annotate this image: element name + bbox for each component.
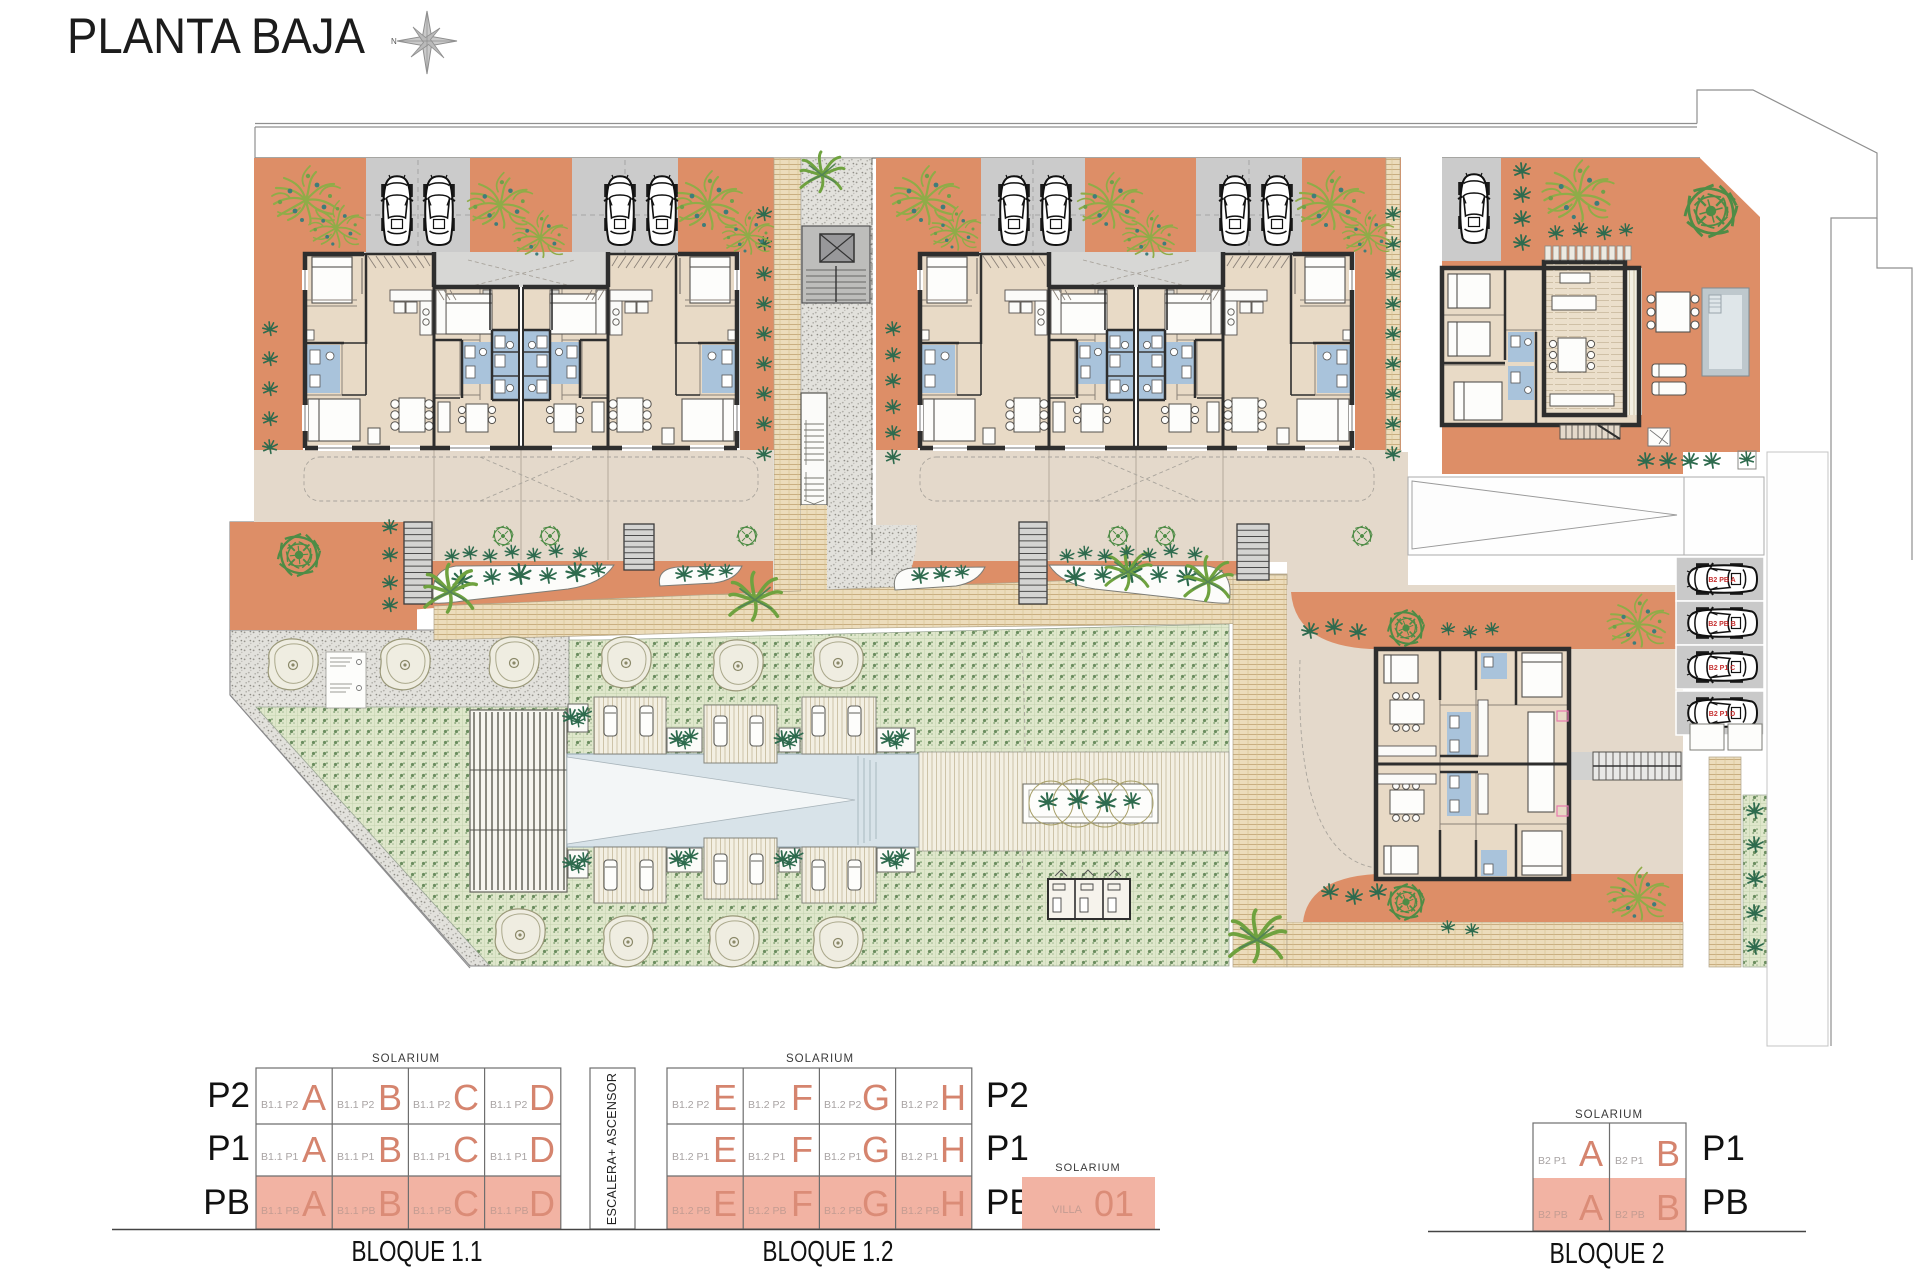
svg-text:B1.1 PB: B1.1 PB: [490, 1205, 529, 1217]
svg-text:B1.2 P2: B1.2 P2: [824, 1099, 862, 1111]
svg-text:E: E: [713, 1129, 737, 1170]
svg-text:B1.1 P1: B1.1 P1: [337, 1151, 375, 1163]
svg-text:B2 P1: B2 P1: [1538, 1155, 1567, 1167]
svg-text:E: E: [713, 1183, 737, 1224]
svg-text:B1.2 P2: B1.2 P2: [672, 1099, 710, 1111]
svg-text:E: E: [713, 1077, 737, 1118]
svg-text:F: F: [791, 1183, 813, 1224]
svg-text:B1.2 PB: B1.2 PB: [672, 1205, 711, 1217]
svg-text:B: B: [378, 1183, 402, 1224]
svg-text:B1.2 P2: B1.2 P2: [748, 1099, 786, 1111]
svg-text:B1.1 P2: B1.1 P2: [413, 1099, 451, 1111]
svg-text:N: N: [391, 37, 397, 46]
svg-text:BLOQUE 2: BLOQUE 2: [1550, 1238, 1665, 1270]
svg-text:B: B: [1656, 1187, 1680, 1228]
svg-text:B1.2 P1: B1.2 P1: [672, 1151, 710, 1163]
svg-text:SOLARIUM: SOLARIUM: [372, 1053, 440, 1065]
svg-text:B2 P1 C: B2 P1 C: [1709, 665, 1735, 672]
svg-text:VILLA: VILLA: [1052, 1204, 1083, 1216]
svg-text:B1.2 P1: B1.2 P1: [824, 1151, 862, 1163]
svg-text:A: A: [1579, 1133, 1603, 1174]
svg-text:D: D: [529, 1129, 555, 1170]
svg-text:B1.1 P2: B1.1 P2: [490, 1099, 528, 1111]
svg-text:P1: P1: [986, 1129, 1029, 1168]
svg-text:B1.2 P1: B1.2 P1: [901, 1151, 939, 1163]
svg-text:D: D: [529, 1077, 555, 1118]
svg-text:H: H: [940, 1129, 966, 1170]
svg-text:H: H: [940, 1077, 966, 1118]
svg-text:PLANTA BAJA: PLANTA BAJA: [67, 8, 366, 64]
svg-text:BLOQUE 1.2: BLOQUE 1.2: [763, 1236, 894, 1268]
svg-text:B1.2 P2: B1.2 P2: [901, 1099, 939, 1111]
svg-text:SOLARIUM: SOLARIUM: [1575, 1109, 1643, 1121]
svg-text:P1: P1: [207, 1129, 250, 1168]
svg-text:B1.2 PB: B1.2 PB: [824, 1205, 863, 1217]
svg-text:PB: PB: [203, 1183, 250, 1222]
svg-text:C: C: [453, 1183, 479, 1224]
svg-text:P2: P2: [986, 1076, 1029, 1115]
svg-text:B1.1 P1: B1.1 P1: [490, 1151, 528, 1163]
svg-text:H: H: [940, 1183, 966, 1224]
svg-text:F: F: [791, 1129, 813, 1170]
svg-text:B1.1 P2: B1.1 P2: [337, 1099, 375, 1111]
svg-text:B2 PB A: B2 PB A: [1708, 577, 1735, 584]
svg-text:B1.2 P1: B1.2 P1: [748, 1151, 786, 1163]
svg-text:B: B: [378, 1077, 402, 1118]
svg-text:B1.1 P1: B1.1 P1: [261, 1151, 299, 1163]
svg-text:B1.1 P1: B1.1 P1: [413, 1151, 451, 1163]
svg-text:B2 PB B: B2 PB B: [1708, 621, 1736, 628]
svg-text:G: G: [862, 1129, 890, 1170]
svg-text:A: A: [1579, 1187, 1603, 1228]
svg-text:B2 PB: B2 PB: [1538, 1209, 1568, 1221]
svg-text:B1.1 PB: B1.1 PB: [413, 1205, 452, 1217]
svg-text:A: A: [302, 1077, 326, 1118]
svg-text:B: B: [378, 1129, 402, 1170]
svg-text:P2: P2: [207, 1076, 250, 1115]
svg-text:A: A: [302, 1129, 326, 1170]
svg-text:01: 01: [1094, 1183, 1134, 1224]
svg-text:SOLARIUM: SOLARIUM: [1055, 1162, 1120, 1174]
svg-text:P1: P1: [1702, 1129, 1745, 1168]
svg-text:A: A: [302, 1183, 326, 1224]
svg-text:G: G: [862, 1183, 890, 1224]
svg-text:D: D: [529, 1183, 555, 1224]
svg-text:B1.1 PB: B1.1 PB: [337, 1205, 376, 1217]
svg-text:B2 P1 D: B2 P1 D: [1709, 711, 1735, 718]
svg-text:B2 P1: B2 P1: [1615, 1155, 1644, 1167]
svg-text:G: G: [862, 1077, 890, 1118]
svg-text:C: C: [453, 1077, 479, 1118]
svg-text:B1.2 PB: B1.2 PB: [748, 1205, 787, 1217]
svg-text:B1.1 P2: B1.1 P2: [261, 1099, 299, 1111]
svg-text:C: C: [453, 1129, 479, 1170]
svg-text:B1.1 PB: B1.1 PB: [261, 1205, 300, 1217]
svg-text:PB: PB: [1702, 1183, 1749, 1222]
svg-text:B: B: [1656, 1133, 1680, 1174]
svg-text:ESCALERA+ ASCENSOR: ESCALERA+ ASCENSOR: [605, 1073, 619, 1225]
svg-text:B2 PB: B2 PB: [1615, 1209, 1645, 1221]
svg-text:B1.2 PB: B1.2 PB: [901, 1205, 940, 1217]
svg-text:BLOQUE 1.1: BLOQUE 1.1: [352, 1236, 483, 1268]
svg-text:F: F: [791, 1077, 813, 1118]
svg-text:SOLARIUM: SOLARIUM: [786, 1053, 854, 1065]
